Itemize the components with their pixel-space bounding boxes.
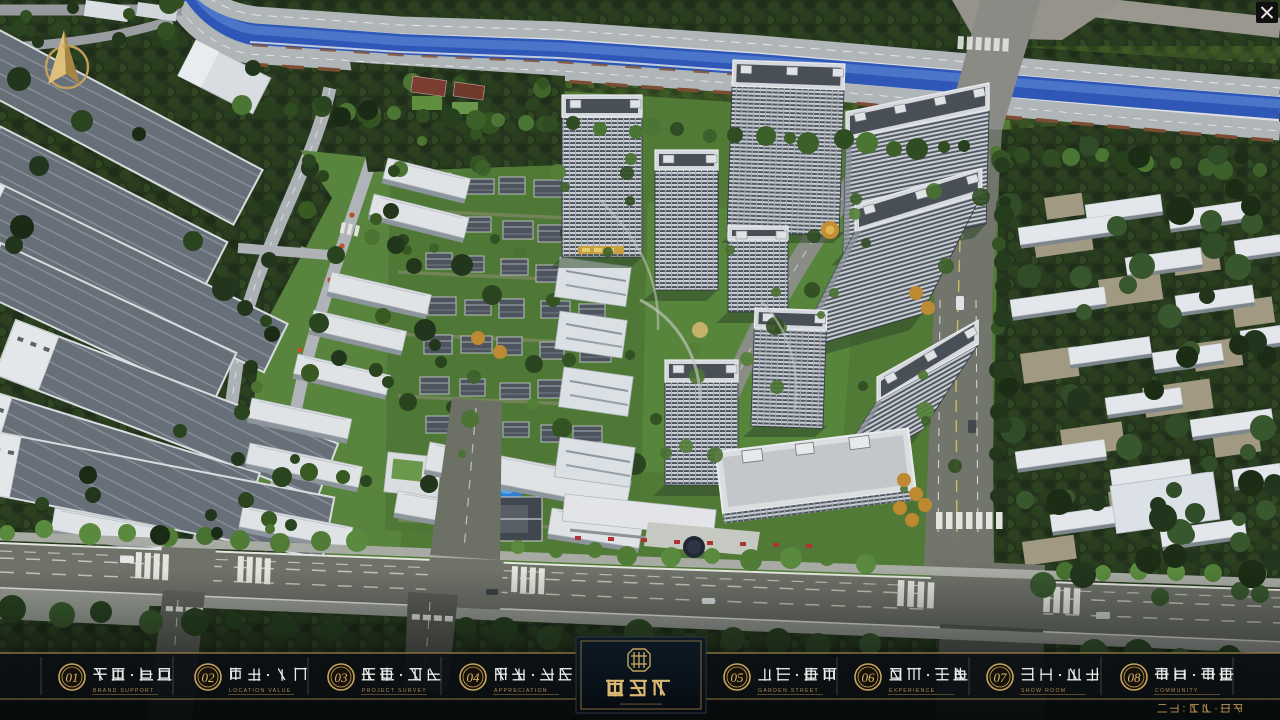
svg-text:05: 05 xyxy=(731,670,745,685)
svg-text:02: 02 xyxy=(202,670,216,685)
svg-text:GARDEN STREET: GARDEN STREET xyxy=(758,688,819,694)
svg-text:APPRECIATION: APPRECIATION xyxy=(494,688,548,694)
svg-text:06: 06 xyxy=(862,670,876,685)
svg-text:08: 08 xyxy=(1128,670,1142,685)
svg-text:SHOW ROOM: SHOW ROOM xyxy=(1021,688,1066,694)
svg-text:07: 07 xyxy=(994,670,1008,685)
svg-text:01: 01 xyxy=(66,670,79,685)
svg-text:PROJECT SURVEY: PROJECT SURVEY xyxy=(362,688,427,694)
svg-text:COMMUNITY: COMMUNITY xyxy=(1155,688,1199,694)
svg-text:04: 04 xyxy=(467,670,481,685)
svg-text:EXPERIENCE: EXPERIENCE xyxy=(889,688,935,694)
svg-text:03: 03 xyxy=(335,670,349,685)
svg-text:LOCATION VALUE: LOCATION VALUE xyxy=(229,688,291,694)
svg-text:BRAND SUPPORT: BRAND SUPPORT xyxy=(93,688,154,694)
